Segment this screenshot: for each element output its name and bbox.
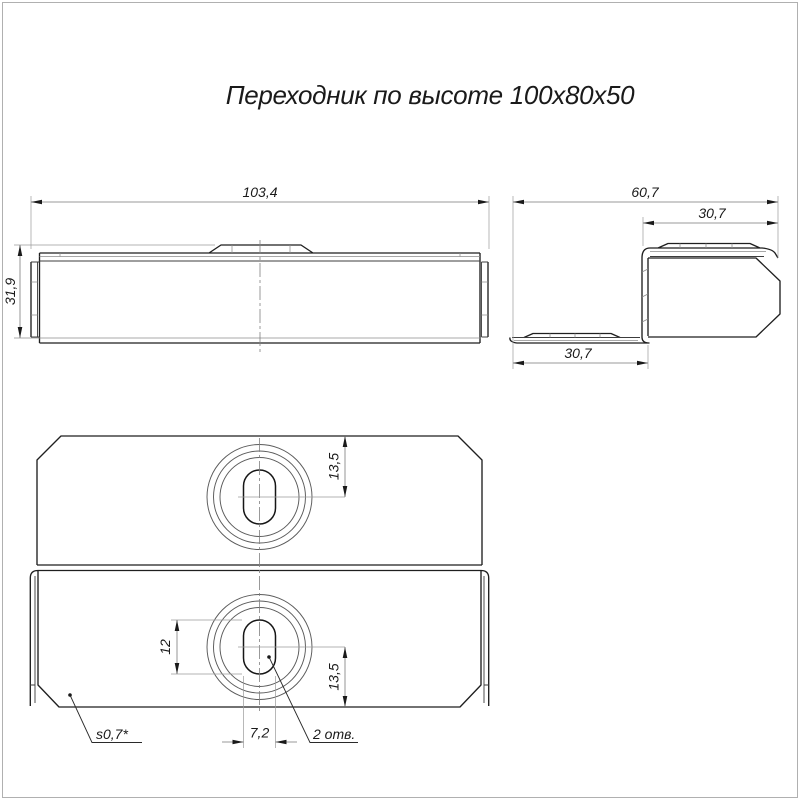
dim-hole-offset-top: 13,5: [326, 453, 342, 480]
plan-extension-lines: [171, 497, 345, 748]
holes-count-note: 2 отв.: [312, 726, 355, 742]
side-view-outline: [31, 245, 488, 343]
side-view-inner-lines: [31, 261, 488, 337]
profile-view: 60,7 30,7 30,7: [510, 184, 780, 369]
dim-profile-overall: 60,7: [631, 184, 659, 200]
side-view-extension-lines: [14, 196, 489, 249]
drawing-title: Переходник по высоте 100х80х50: [226, 80, 635, 110]
drawing-sheet: Переходник по высоте 100х80х50 103,4 31,…: [0, 0, 800, 800]
dim-hole-offset-bottom: 13,5: [326, 663, 342, 690]
holes-note-leader-dot: [267, 655, 271, 659]
plan-dimension-lines: [177, 436, 345, 742]
profile-outline: [510, 244, 780, 344]
sheet-border: [3, 3, 798, 798]
profile-inner-lines: [512, 257, 764, 338]
thickness-note-leader-dot: [68, 693, 72, 697]
sheet-thickness-note: s0,7*: [96, 726, 128, 742]
dim-profile-bottom-flange: 30,7: [564, 345, 592, 361]
dim-side-width: 103,4: [242, 184, 277, 200]
side-view-detail-lines: [14, 245, 488, 338]
dim-slot-length: 12: [157, 639, 173, 655]
plan-dimension-arrows: [175, 436, 348, 744]
plan-view: 13,5 12 13,5 7,2 2 отв. s0,7*: [30, 436, 488, 748]
dim-profile-top-flange: 30,7: [698, 205, 726, 221]
side-view: 103,4 31,9: [2, 184, 489, 353]
side-view-dimension-arrows: [18, 200, 489, 338]
dim-slot-width: 7,2: [250, 725, 270, 741]
technical-drawing: Переходник по высоте 100х80х50 103,4 31,…: [0, 0, 800, 800]
dim-side-height: 31,9: [2, 278, 18, 305]
side-view-dimension-lines: [20, 202, 489, 338]
profile-dimension-lines: [513, 202, 778, 363]
